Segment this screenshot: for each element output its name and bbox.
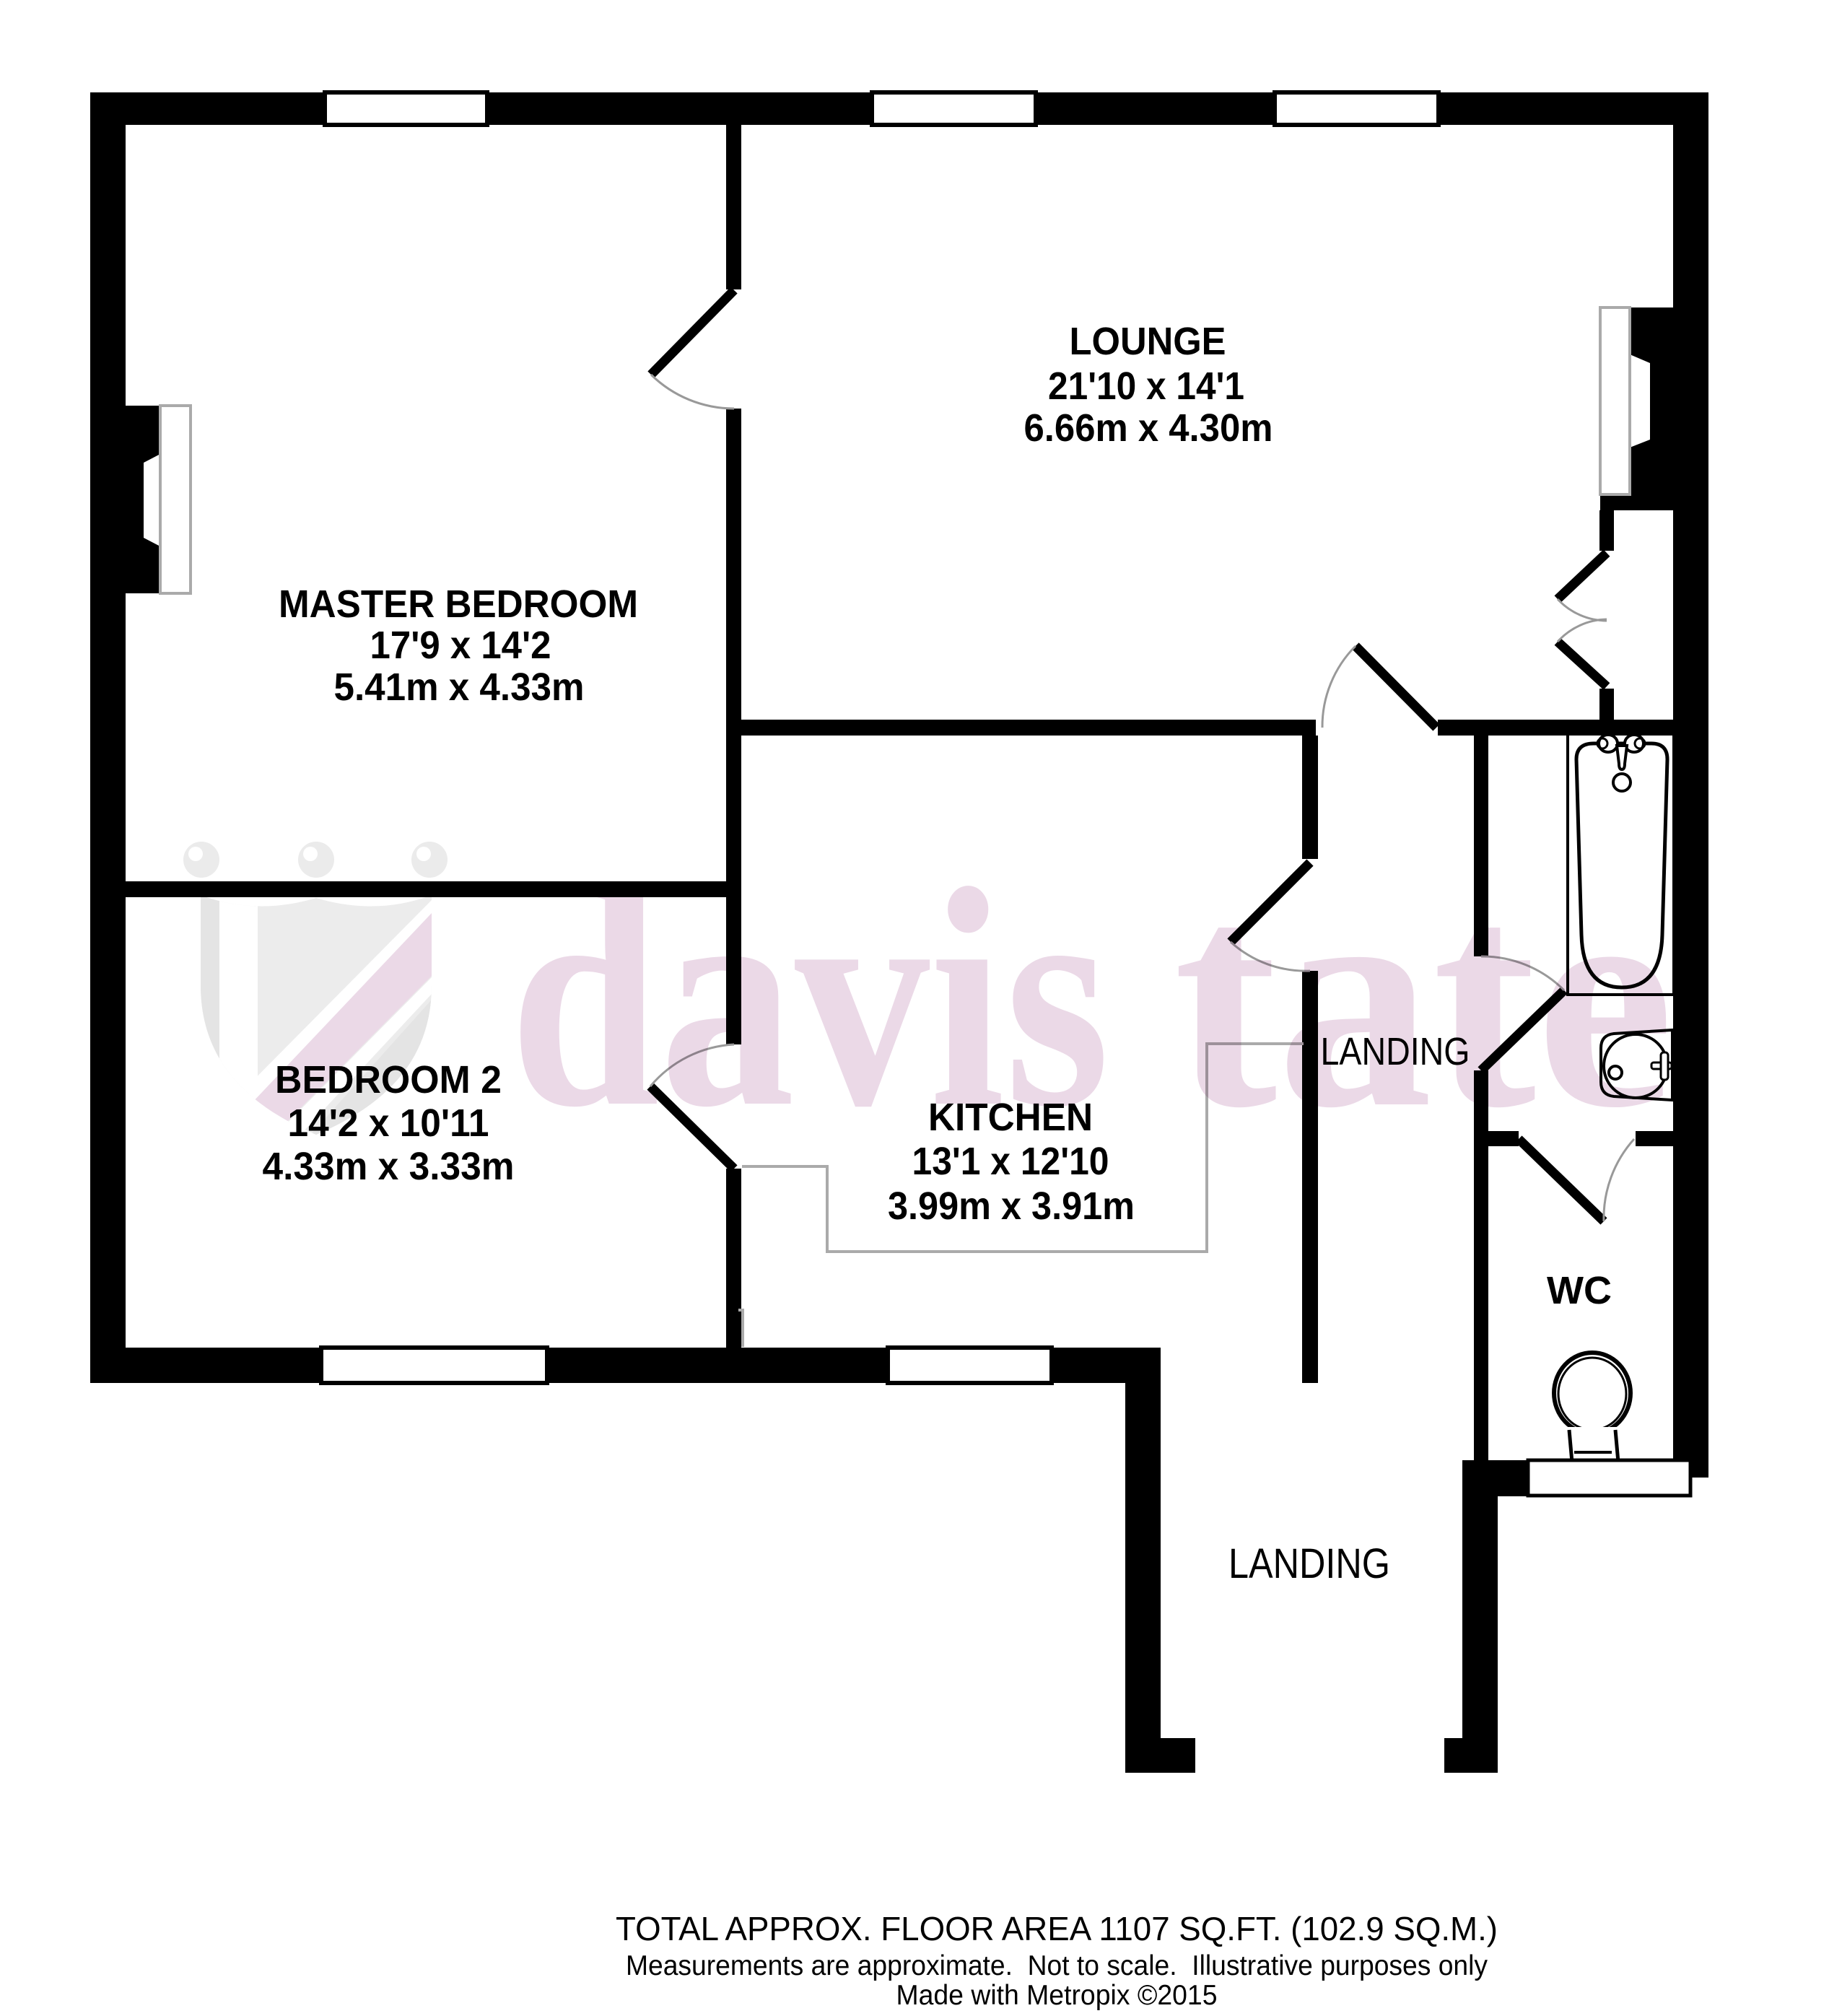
svg-text:LANDING: LANDING: [1228, 1540, 1390, 1587]
svg-text:WC: WC: [1547, 1269, 1612, 1312]
svg-text:LOUNGE: LOUNGE: [1070, 320, 1226, 363]
svg-text:17'9 x 14'2: 17'9 x 14'2: [370, 624, 551, 667]
svg-text:davis: davis: [510, 824, 1110, 1172]
svg-text:6.66m x 4.30m: 6.66m x 4.30m: [1024, 406, 1273, 450]
svg-text:tate: tate: [1174, 824, 1674, 1172]
svg-text:3.99m x 3.91m: 3.99m x 3.91m: [888, 1184, 1135, 1228]
svg-text:Measurements are approximate.: Measurements are approximate. Not to sca…: [626, 1950, 1488, 1981]
svg-text:5.41m x 4.33m: 5.41m x 4.33m: [334, 666, 585, 709]
svg-text:4.33m x 3.33m: 4.33m x 3.33m: [263, 1145, 515, 1188]
svg-text:Made with Metropix ©2015: Made with Metropix ©2015: [896, 1980, 1218, 2011]
svg-text:MASTER BEDROOM: MASTER BEDROOM: [279, 582, 638, 626]
svg-text:21'10 x 14'1: 21'10 x 14'1: [1048, 365, 1244, 408]
svg-text:TOTAL APPROX. FLOOR AREA 1107: TOTAL APPROX. FLOOR AREA 1107 SQ.FT. (10…: [616, 1910, 1498, 1947]
